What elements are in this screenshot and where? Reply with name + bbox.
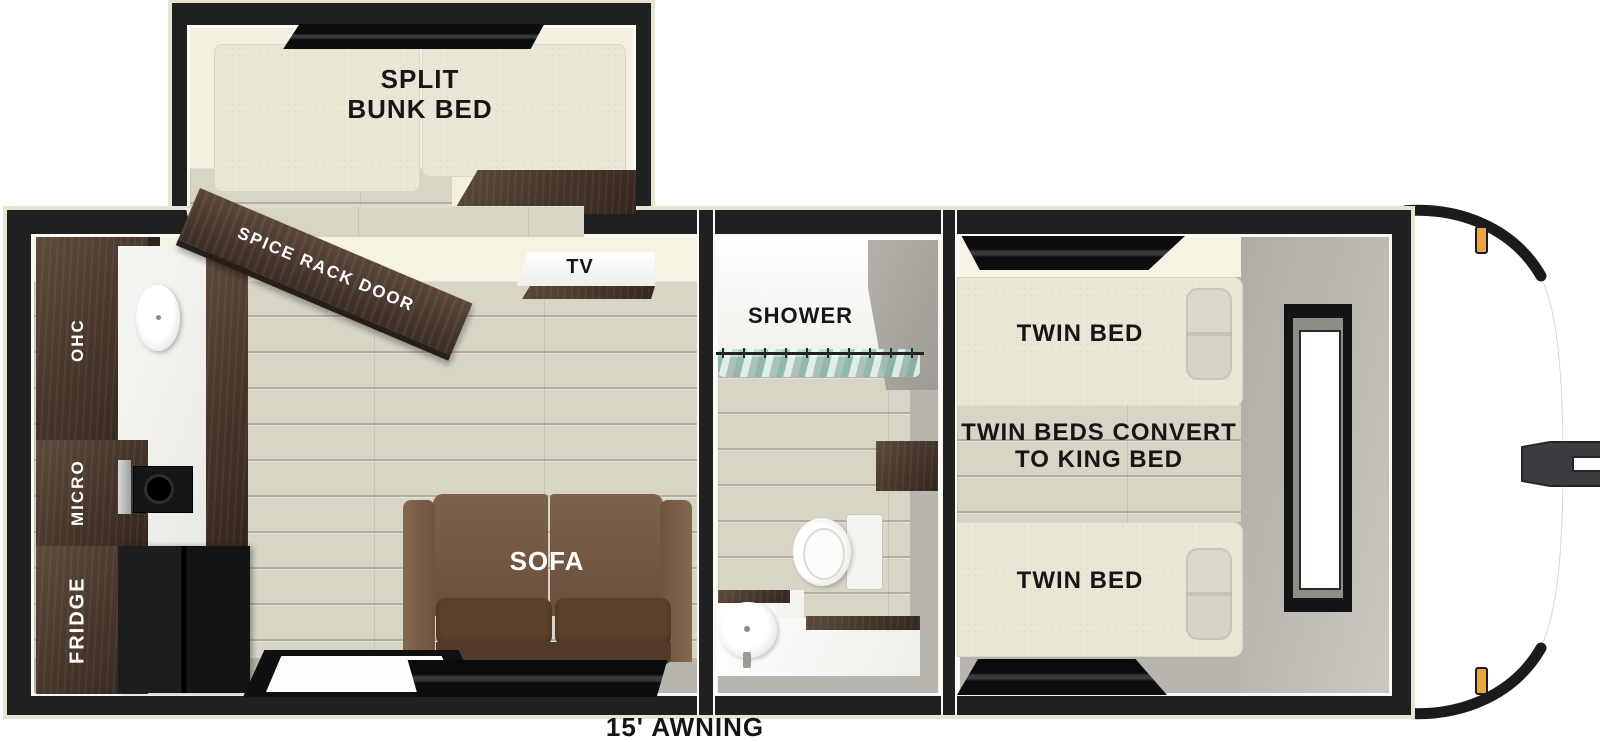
twin-bed-front-label: TWIN BED <box>985 567 1175 595</box>
bathroom-faucet <box>743 652 751 668</box>
sofa-seat-left <box>436 598 552 646</box>
ohc-label: OHC <box>40 280 116 400</box>
bunk-bed-label: SPLIT BUNK BED <box>330 64 510 124</box>
vanity-edge-right <box>806 616 920 630</box>
marker-light-bottom <box>1476 668 1487 694</box>
bunk-bed-label-line1: SPLIT <box>330 64 510 94</box>
micro-label: MICRO <box>40 440 116 546</box>
twin-bed-rear-pillow <box>1186 288 1232 380</box>
marker-light-top <box>1476 227 1487 253</box>
tv-label: TV <box>540 256 620 279</box>
bathroom-cabinet <box>876 441 938 491</box>
vanity-edge-left <box>718 590 790 603</box>
bedroom-side-window-pane <box>1299 330 1341 590</box>
sofa-arm-left <box>403 500 435 662</box>
bunk-window <box>275 24 547 49</box>
tv-cabinet-shadow <box>522 286 655 299</box>
twin-bed-front-pillow <box>1186 548 1232 640</box>
wall-living-bath <box>697 210 715 715</box>
sofa: SOFA <box>403 494 692 664</box>
hitch-coupler <box>1522 442 1600 486</box>
bedroom-window-top <box>957 236 1185 270</box>
toilet-seat <box>803 528 845 580</box>
kitchen-pantry-cabinet <box>206 246 248 546</box>
wall-bath-bedroom <box>941 210 957 715</box>
shower-curtain-hooks <box>722 348 920 358</box>
trailer-front-cap <box>1404 200 1600 725</box>
toilet-tank <box>846 514 883 590</box>
awning-label: 15' AWNING <box>563 712 807 742</box>
kitchen-oven-handle <box>118 460 131 514</box>
bunk-bed-label-line2: BUNK BED <box>330 94 510 124</box>
king-convert-note-line2: TO KING BED <box>958 446 1240 473</box>
kitchen-sink-drain <box>156 315 161 320</box>
sofa-seat-right <box>555 598 671 646</box>
living-window <box>405 660 670 697</box>
twin-bed-rear-label: TWIN BED <box>985 320 1175 348</box>
bedroom-window-bottom <box>957 659 1167 695</box>
shower-label: SHOWER <box>718 303 883 329</box>
cooktop-burner <box>144 474 174 504</box>
king-convert-note: TWIN BEDS CONVERT TO KING BED <box>958 419 1240 473</box>
fridge-label: FRIDGE <box>40 550 116 690</box>
king-convert-note-line1: TWIN BEDS CONVERT <box>958 419 1240 446</box>
floorplan-diagram: SPLIT BUNK BED OHC MICRO FRIDGE TV SPICE… <box>0 0 1600 742</box>
sofa-label: SOFA <box>467 546 627 577</box>
bathroom-sink-drain <box>744 626 750 632</box>
kitchen-fridge <box>118 546 250 693</box>
